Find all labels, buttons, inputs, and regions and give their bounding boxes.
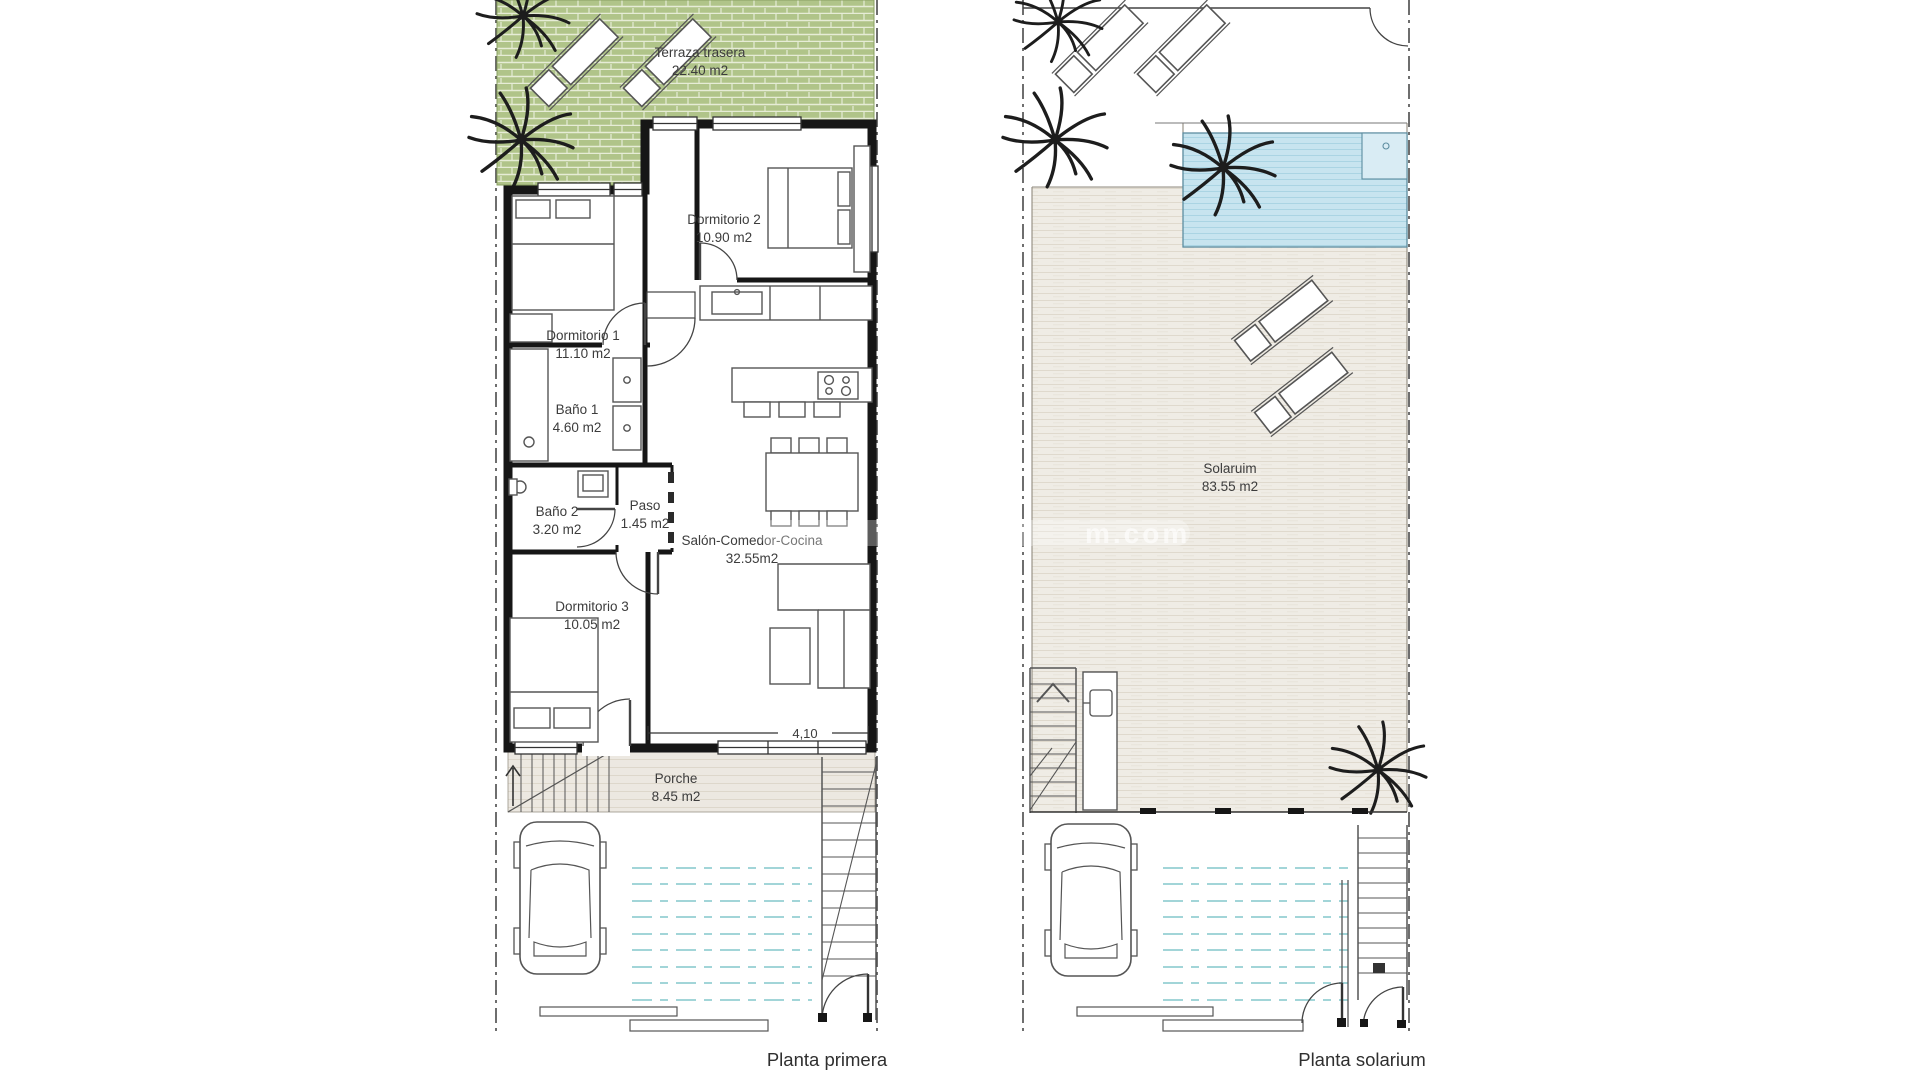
label-solarium-name: Solaruim [1203, 461, 1256, 476]
banyo2-fixtures [509, 471, 608, 497]
entry-step [1163, 1020, 1303, 1031]
label-banyo2-area: 3.20 m2 [533, 522, 582, 537]
dimension-text: 4,10 [792, 726, 817, 741]
label-porche-name: Porche [655, 771, 698, 786]
bed-dormitorio2 [768, 168, 852, 248]
entry-step [630, 1020, 768, 1031]
label-dorm2-name: Dormitorio 2 [687, 212, 761, 227]
garage-right [1045, 824, 1407, 1031]
bed-dormitorio3 [510, 618, 598, 742]
door-hall [647, 292, 695, 366]
door-top-right [1370, 8, 1408, 46]
door-banyo2 [577, 509, 615, 547]
car [514, 822, 606, 974]
sofa [770, 564, 870, 688]
kitchen-counter [700, 286, 872, 320]
entry-step [540, 1007, 677, 1016]
bed-dormitorio1 [512, 196, 614, 310]
watermark: m.com [760, 518, 1190, 549]
label-dorm1-area: 11.10 m2 [555, 346, 610, 361]
label-solarium-area: 83.55 m2 [1202, 479, 1258, 494]
closet-solarium [1083, 672, 1117, 810]
label-banyo1-area: 4.60 m2 [553, 420, 602, 435]
label-dorm3-area: 10.05 m2 [564, 617, 620, 632]
stairwell-right [1302, 825, 1407, 1028]
floorplan-page: 4,10 Terraza trasera 22.40 m2 [0, 0, 1920, 1080]
palm-tree [1003, 88, 1107, 187]
driveway-markings [632, 868, 812, 1000]
car [1045, 824, 1137, 976]
label-dorm3-name: Dormitorio 3 [555, 599, 629, 614]
label-dorm2-area: 10.90 m2 [696, 230, 752, 245]
caption-planta-primera: Planta primera [767, 1049, 888, 1070]
dimension-410: 4,10 [648, 726, 868, 741]
label-terraza-area: 22.40 m2 [672, 63, 728, 78]
driveway-markings [1163, 868, 1348, 1000]
sun-lounger [1134, 0, 1230, 96]
label-salon-area: 32.55m2 [726, 551, 779, 566]
label-paso-area: 1.45 m2 [621, 516, 670, 531]
label-porche-area: 8.45 m2 [652, 789, 701, 804]
watermark-text: m.com [1085, 518, 1190, 549]
wardrobe [854, 146, 870, 272]
floorplan-canvas: 4,10 Terraza trasera 22.40 m2 [0, 0, 1920, 1080]
furniture [509, 146, 872, 742]
label-banyo2-name: Baño 2 [536, 504, 579, 519]
label-dorm1-name: Dormitorio 1 [546, 328, 620, 343]
dining-table [766, 438, 858, 526]
label-banyo1-name: Baño 1 [556, 402, 599, 417]
kitchen-island [732, 368, 872, 417]
label-terraza-name: Terraza trasera [655, 45, 746, 60]
door-dormitorio2 [700, 243, 737, 280]
palm-tree [1014, 0, 1102, 62]
entry-step [1077, 1007, 1213, 1016]
caption-planta-solarium: Planta solarium [1298, 1049, 1426, 1070]
door-dormitorio3 [616, 552, 658, 594]
label-paso-name: Paso [630, 498, 661, 513]
